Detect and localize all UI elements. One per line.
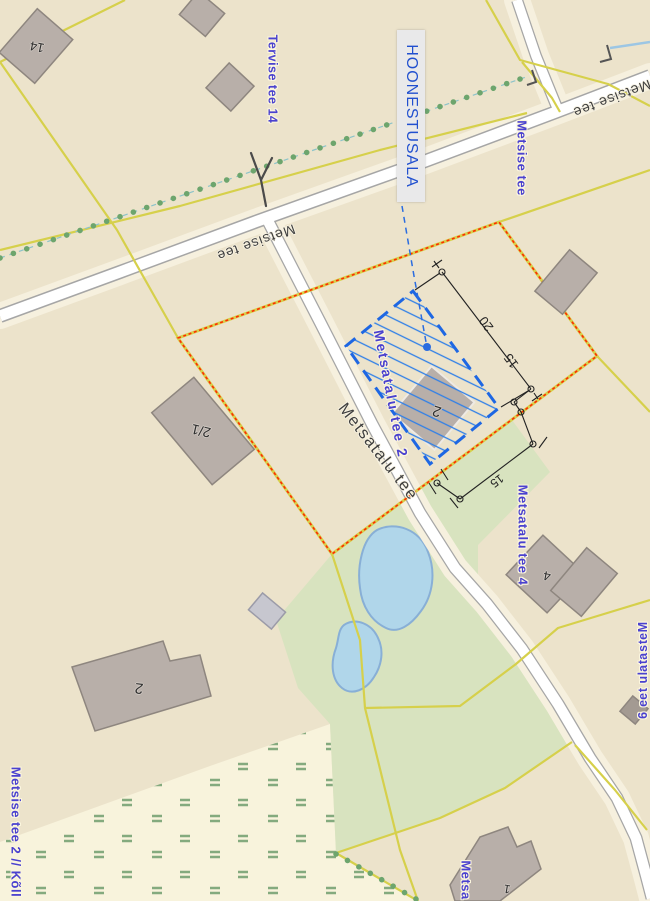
- hoonestusala-label: HOONESTUSALA: [402, 44, 420, 188]
- map-canvas[interactable]: [0, 0, 650, 901]
- hoonestusala-label-box: HOONESTUSALA: [397, 30, 425, 202]
- map-viewport[interactable]: HOONESTUSALA Tervise tee 14 Metsise tee …: [0, 0, 650, 901]
- leader-dot: [423, 343, 431, 351]
